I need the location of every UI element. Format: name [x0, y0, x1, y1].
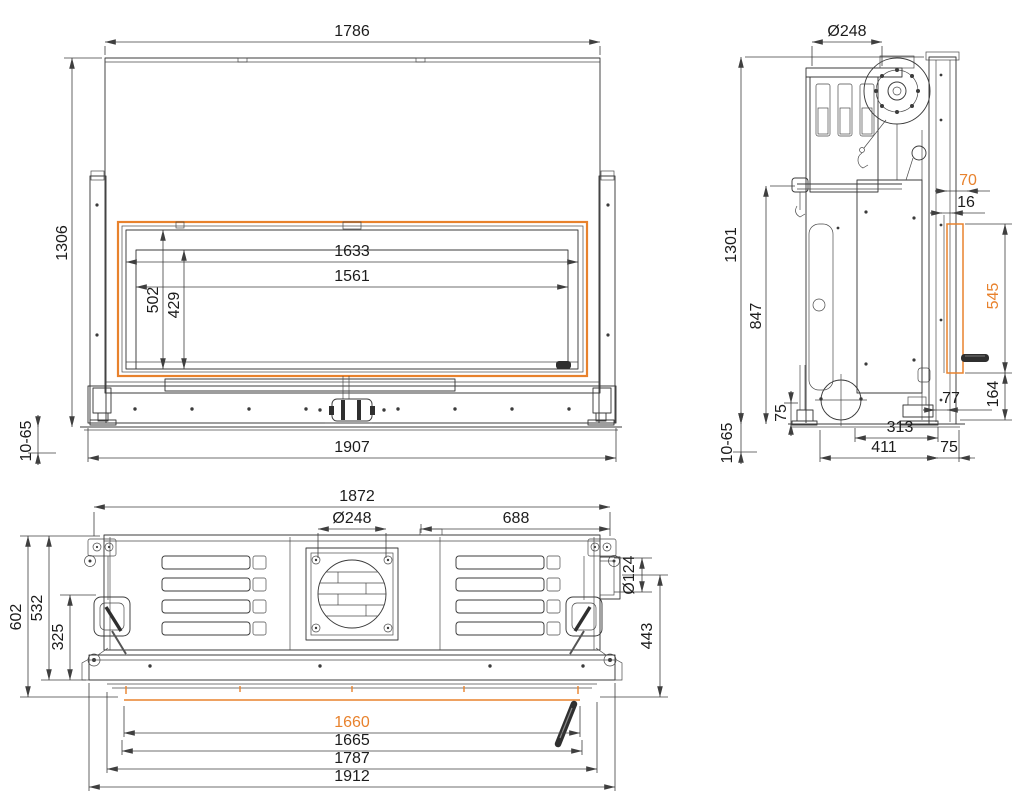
dim-label: 75: [940, 439, 958, 456]
front-view: 1786 1306 1633 1561 502 429 10-65: [18, 23, 622, 465]
dim-label: 602: [8, 604, 25, 631]
dim-front-opening-width: 1633: [126, 243, 578, 262]
dim-label: 1660: [334, 714, 370, 731]
dim-side-door-height: 545: [965, 224, 1012, 373]
dim-label: 77: [942, 390, 960, 407]
dim-label: 10-65: [719, 422, 736, 463]
dim-side-rod-height: 847: [748, 186, 795, 424]
side-geometry: [788, 52, 989, 427]
dim-side-front-offset: 75: [926, 430, 975, 462]
dim-label: 411: [871, 439, 897, 456]
dim-label: 1912: [334, 768, 370, 785]
dim-label: Ø248: [827, 23, 866, 40]
dim-label: 75: [773, 404, 790, 422]
dim-front-overall-width: 1786: [105, 23, 600, 55]
dim-top-flue-offset: 688: [421, 510, 610, 533]
dim-label: 1633: [334, 243, 370, 260]
dim-front-opening-height: 502: [145, 230, 163, 369]
dim-label: 16: [957, 194, 975, 211]
dim-label: 1306: [54, 225, 71, 261]
dim-label: 1872: [339, 488, 375, 505]
dim-top-flue-diameter: Ø248: [318, 510, 386, 558]
dim-label: 70: [959, 172, 977, 189]
dim-label: 325: [50, 624, 67, 651]
dim-side-foot-height: 75: [773, 391, 798, 436]
dim-front-glass-height: 429: [166, 250, 184, 369]
dim-label: 1665: [334, 732, 370, 749]
dim-side-flue-diameter: Ø248: [812, 23, 882, 66]
side-view: Ø248 1301 847 75 10-65: [719, 23, 1012, 464]
dim-side-base-height: 164: [960, 373, 1012, 420]
dim-front-base-width: 1907: [88, 428, 616, 462]
dim-front-overall-height: 1306: [54, 58, 102, 427]
dim-label: 1561: [334, 268, 370, 285]
dim-label: 1787: [334, 750, 370, 767]
dim-side-panel-gap: 16: [930, 194, 985, 213]
top-geometry: [82, 529, 622, 744]
dim-label: Ø248: [332, 510, 371, 527]
dim-label: 1786: [334, 23, 370, 40]
dim-label: 847: [748, 303, 765, 330]
dim-label: 502: [145, 287, 162, 314]
fireplace-dimension-drawing: 1786 1306 1633 1561 502 429 10-65: [0, 0, 1035, 805]
top-view: 1872 Ø248 688 Ø124 443 602: [8, 488, 668, 791]
dim-top-total-depth: 602: [8, 536, 118, 697]
dim-side-frame-depth: 70: [935, 172, 990, 191]
dim-label: 1907: [334, 439, 370, 456]
dim-label: 429: [166, 292, 183, 319]
dim-top-front-depth: 532: [29, 536, 86, 680]
dim-label: 313: [887, 419, 914, 436]
dim-label: 545: [985, 283, 1002, 310]
dim-side-body-depth: 411: [820, 430, 938, 462]
dim-label: 688: [503, 510, 530, 527]
dim-label: 532: [29, 595, 46, 622]
dim-front-foot-adjust: 10-65: [18, 415, 56, 465]
dim-label: 1301: [723, 227, 740, 263]
dim-front-glass-width: 1561: [136, 268, 568, 287]
dim-side-foot-adjust: 10-65: [719, 412, 757, 464]
dim-label: 164: [985, 381, 1002, 408]
technical-drawing-page: 1786 1306 1633 1561 502 429 10-65: [0, 0, 1035, 805]
dim-label: 10-65: [18, 420, 35, 461]
dim-label: 443: [639, 623, 656, 650]
